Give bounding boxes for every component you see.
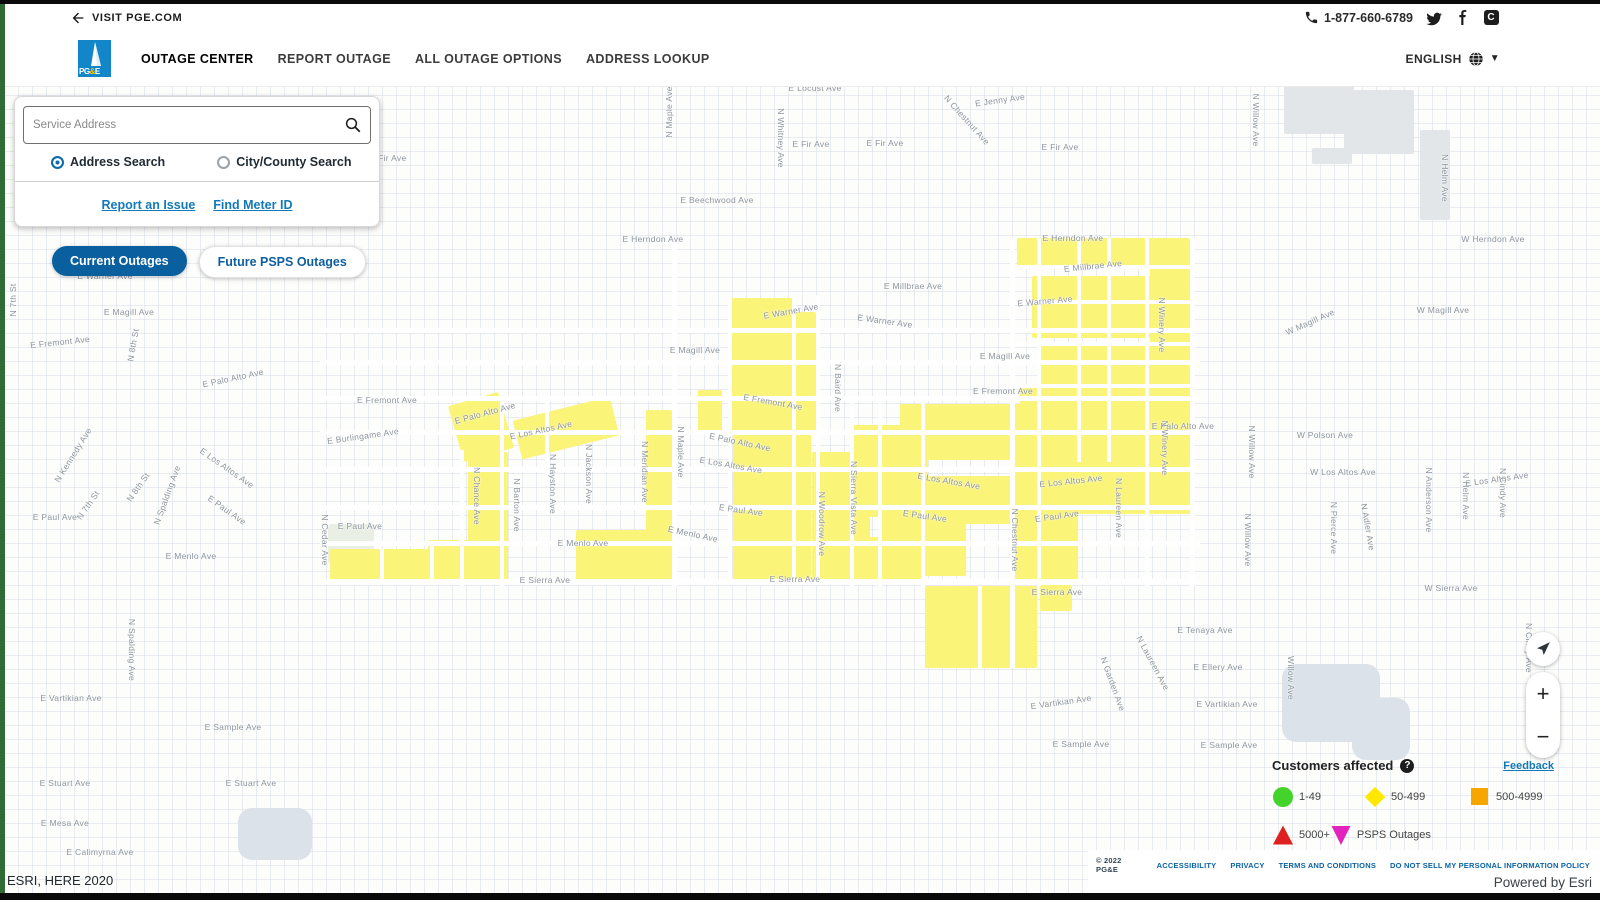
street-label: N Willow Ave xyxy=(1247,425,1257,478)
street-label: N Cedar Ave xyxy=(320,514,330,565)
legend-title: Customers affected xyxy=(1272,758,1393,773)
street-label: E Vartikian Ave xyxy=(40,693,101,703)
street-label: E Magill Ave xyxy=(980,351,1030,361)
street xyxy=(380,549,384,585)
language-selector[interactable]: ENGLISH ▼ xyxy=(1406,51,1500,67)
future-psps-outages-button[interactable]: Future PSPS Outages xyxy=(199,246,366,278)
street-label: E Fir Ave xyxy=(866,138,903,148)
legend-item-500-4999: 500-4999 xyxy=(1469,786,1560,808)
street-label: E Fremont Ave xyxy=(973,386,1033,396)
nav-all-outage-options[interactable]: ALL OUTAGE OPTIONS xyxy=(415,52,562,66)
outage-area xyxy=(428,540,484,584)
street-label: E Calimyrna Ave xyxy=(66,847,133,857)
outage-view-toggle: Current Outages Future PSPS Outages xyxy=(52,246,366,278)
street xyxy=(1008,342,1198,346)
legend-item-psps-outages: PSPS Outages xyxy=(1330,824,1450,846)
twitter-icon[interactable] xyxy=(1424,9,1442,27)
visit-pge-link[interactable]: VISIT PGE.COM xyxy=(70,10,182,26)
street-label: N Winery Ave xyxy=(1157,298,1167,353)
footer-link[interactable]: PRIVACY xyxy=(1230,861,1264,870)
radio-address-search[interactable]: Address Search xyxy=(51,155,165,169)
street-label: E Menlo Ave xyxy=(166,551,217,561)
street-label: E Ellery Ave xyxy=(1193,662,1242,672)
street-label: N Helm Ave xyxy=(1461,472,1471,520)
radio-selected-icon xyxy=(51,156,64,169)
street-label: N Helm Ave xyxy=(1440,154,1450,202)
street-label: W Los Altos Ave xyxy=(1310,467,1376,477)
street xyxy=(1107,238,1111,462)
footer-links: © 2022 PG&E ACCESSIBILITYPRIVACYTERMS AN… xyxy=(1088,850,1600,874)
street xyxy=(430,545,434,585)
radio-city-county-search[interactable]: City/County Search xyxy=(217,155,351,169)
outage-center-page: E Locust AveN Maple AveE Jenny AveN Ches… xyxy=(0,0,1600,900)
zoom-control: + − xyxy=(1526,672,1560,758)
street-label: E Stuart Ave xyxy=(226,778,277,788)
outage-area xyxy=(1163,250,1193,274)
street-label: W Polson Ave xyxy=(1297,430,1353,440)
utility-bar: VISIT PGE.COM 1-877-660-6789 C xyxy=(5,4,1600,32)
zoom-in-button[interactable]: + xyxy=(1526,683,1560,705)
street-label: N Meridian Ave xyxy=(640,441,650,503)
nav-outage-center[interactable]: OUTAGE CENTER xyxy=(141,52,254,66)
globe-icon xyxy=(1468,51,1484,67)
street xyxy=(320,360,1200,365)
address-search-panel: Address Search City/County Search Report… xyxy=(14,96,380,227)
current-outages-button[interactable]: Current Outages xyxy=(52,246,187,276)
street-label: N Chance Ave xyxy=(472,467,482,525)
street xyxy=(320,328,1200,333)
language-label: ENGLISH xyxy=(1406,52,1462,66)
footer-link[interactable]: ACCESSIBILITY xyxy=(1157,861,1217,870)
main-header: PG&E OUTAGE CENTERREPORT OUTAGEALL OUTAG… xyxy=(5,31,1600,87)
legend-item-50-499: 50-499 xyxy=(1364,786,1469,808)
street-label: E Magill Ave xyxy=(104,307,154,317)
street-label: N Sierra Vista Ave xyxy=(849,461,859,535)
street-label: N Willow Ave xyxy=(1243,513,1253,566)
street-label: N Jackson Ave xyxy=(584,444,594,504)
street-label: N Cindy Ave xyxy=(1498,468,1508,518)
street-label: E Herndon Ave xyxy=(623,234,684,244)
street-label: N Hayston Ave xyxy=(548,454,558,514)
street xyxy=(1145,238,1149,586)
building-footprint xyxy=(1284,82,1354,134)
locate-icon xyxy=(1534,640,1552,658)
street-label: N Willow Ave xyxy=(1251,93,1261,146)
street xyxy=(500,400,504,586)
street-label: E Vartikian Ave xyxy=(1196,699,1257,709)
street-label: N Whitney Ave xyxy=(776,108,786,168)
street-label: E Menlo Ave xyxy=(558,538,609,548)
water-area xyxy=(238,808,312,860)
street-label: N Maple Ave xyxy=(664,86,674,137)
street-label: E Paul Ave xyxy=(338,521,382,531)
legend-item-1-49: 1-49 xyxy=(1272,786,1364,808)
facebook-icon[interactable] xyxy=(1453,9,1471,27)
street-label: N Laureen Ave xyxy=(1114,478,1124,538)
street-label: E Paul Ave xyxy=(33,512,77,522)
street xyxy=(460,450,464,586)
screen-edge-top xyxy=(0,0,1600,4)
street-label: N Baird Ave xyxy=(833,364,843,412)
main-nav: OUTAGE CENTERREPORT OUTAGEALL OUTAGE OPT… xyxy=(141,52,710,66)
street xyxy=(1037,238,1041,586)
building-footprint xyxy=(1344,90,1414,154)
street-label: E Mesa Ave xyxy=(41,818,89,828)
legend-items: 1-4950-499500-49995000+PSPS Outages xyxy=(1272,786,1560,846)
currents-icon[interactable]: C xyxy=(1482,9,1500,27)
street-label: E Fir Ave xyxy=(792,139,829,149)
street-label: E Fir Ave xyxy=(1041,142,1078,152)
find-meter-link[interactable]: Find Meter ID xyxy=(213,198,292,212)
street-label: E Sierra Ave xyxy=(520,575,571,585)
feedback-link[interactable]: Feedback xyxy=(1503,760,1554,772)
street-label: Willow Ave xyxy=(1286,656,1296,700)
street-label: E Beechwood Ave xyxy=(680,195,753,205)
street-label: N Chestnut Ave xyxy=(1010,508,1020,571)
street-label: N Barton Ave xyxy=(512,478,522,532)
legend-item-5000-: 5000+ xyxy=(1272,824,1330,846)
screen-edge-bottom xyxy=(0,893,1600,900)
outage-area xyxy=(730,298,794,434)
phone-label: 1-877-660-6789 xyxy=(1324,11,1413,25)
street-label: E Herndon Ave xyxy=(1043,233,1104,243)
nav-address-lookup[interactable]: ADDRESS LOOKUP xyxy=(586,52,710,66)
street-label: N Anderson Ave xyxy=(1424,467,1434,532)
street-label: E Fremont Ave xyxy=(357,395,417,405)
street-label: W Sierra Ave xyxy=(1424,583,1477,593)
street xyxy=(1190,238,1195,586)
footer-link[interactable]: TERMS AND CONDITIONS xyxy=(1279,861,1376,870)
help-icon[interactable]: ? xyxy=(1400,759,1414,773)
street-label: E Sample Ave xyxy=(205,722,262,732)
street-label: E Tenaya Ave xyxy=(1177,625,1232,635)
footer-link[interactable]: DO NOT SELL MY PERSONAL INFORMATION POLI… xyxy=(1390,861,1590,870)
street xyxy=(1010,238,1015,668)
phone-number[interactable]: 1-877-660-6789 xyxy=(1304,10,1413,25)
radio-unselected-icon xyxy=(217,156,230,169)
copyright: © 2022 PG&E xyxy=(1096,856,1143,874)
street xyxy=(921,400,925,586)
street-label: N Pierce Ave xyxy=(1329,502,1339,555)
powered-by-esri: Powered by Esri xyxy=(1494,875,1592,890)
street xyxy=(878,400,882,586)
service-address-input[interactable] xyxy=(23,106,371,144)
locate-button[interactable] xyxy=(1526,632,1560,666)
map-attribution: ESRI, HERE 2020 xyxy=(7,873,113,888)
search-icon[interactable] xyxy=(344,116,362,139)
street-label: N Spalding Ave xyxy=(127,619,137,681)
street-label: N Maple Ave xyxy=(676,426,686,477)
street xyxy=(320,541,1200,546)
back-arrow-icon xyxy=(70,10,86,26)
caret-down-icon: ▼ xyxy=(1490,53,1500,64)
street-label: E Millbrae Ave xyxy=(884,281,942,291)
street-label: E Sample Ave xyxy=(1201,740,1258,750)
footer-bar: © 2022 PG&E ACCESSIBILITYPRIVACYTERMS AN… xyxy=(1088,850,1600,893)
visit-pge-label: VISIT PGE.COM xyxy=(92,12,182,24)
report-issue-link[interactable]: Report an Issue xyxy=(102,198,196,212)
street-label: W Herndon Ave xyxy=(1461,234,1524,244)
building-footprint xyxy=(1312,148,1352,164)
street-label: E Magill Ave xyxy=(670,345,720,355)
street-label: W Magill Ave xyxy=(1417,305,1470,315)
street-label: E Sierra Ave xyxy=(770,574,821,584)
street-label: N Winery Ave xyxy=(1160,421,1170,476)
street-label: N Woodrow Ave xyxy=(817,492,827,557)
street-label: N 7th St xyxy=(8,283,18,316)
pge-logo[interactable]: PG&E xyxy=(78,40,111,77)
street xyxy=(320,430,1200,435)
street-label: E Sample Ave xyxy=(1053,739,1110,749)
street xyxy=(978,586,982,668)
street-label: E Stuart Ave xyxy=(40,778,91,788)
water-area xyxy=(1352,698,1410,760)
phone-icon xyxy=(1304,10,1319,25)
screen-edge-left xyxy=(0,0,5,900)
street-label: E Sierra Ave xyxy=(1032,587,1083,597)
street xyxy=(320,579,1200,585)
street xyxy=(792,295,796,585)
nav-report-outage[interactable]: REPORT OUTAGE xyxy=(278,52,391,66)
outage-area xyxy=(1020,388,1188,424)
zoom-out-button[interactable]: − xyxy=(1526,726,1560,748)
street xyxy=(1008,384,1198,388)
